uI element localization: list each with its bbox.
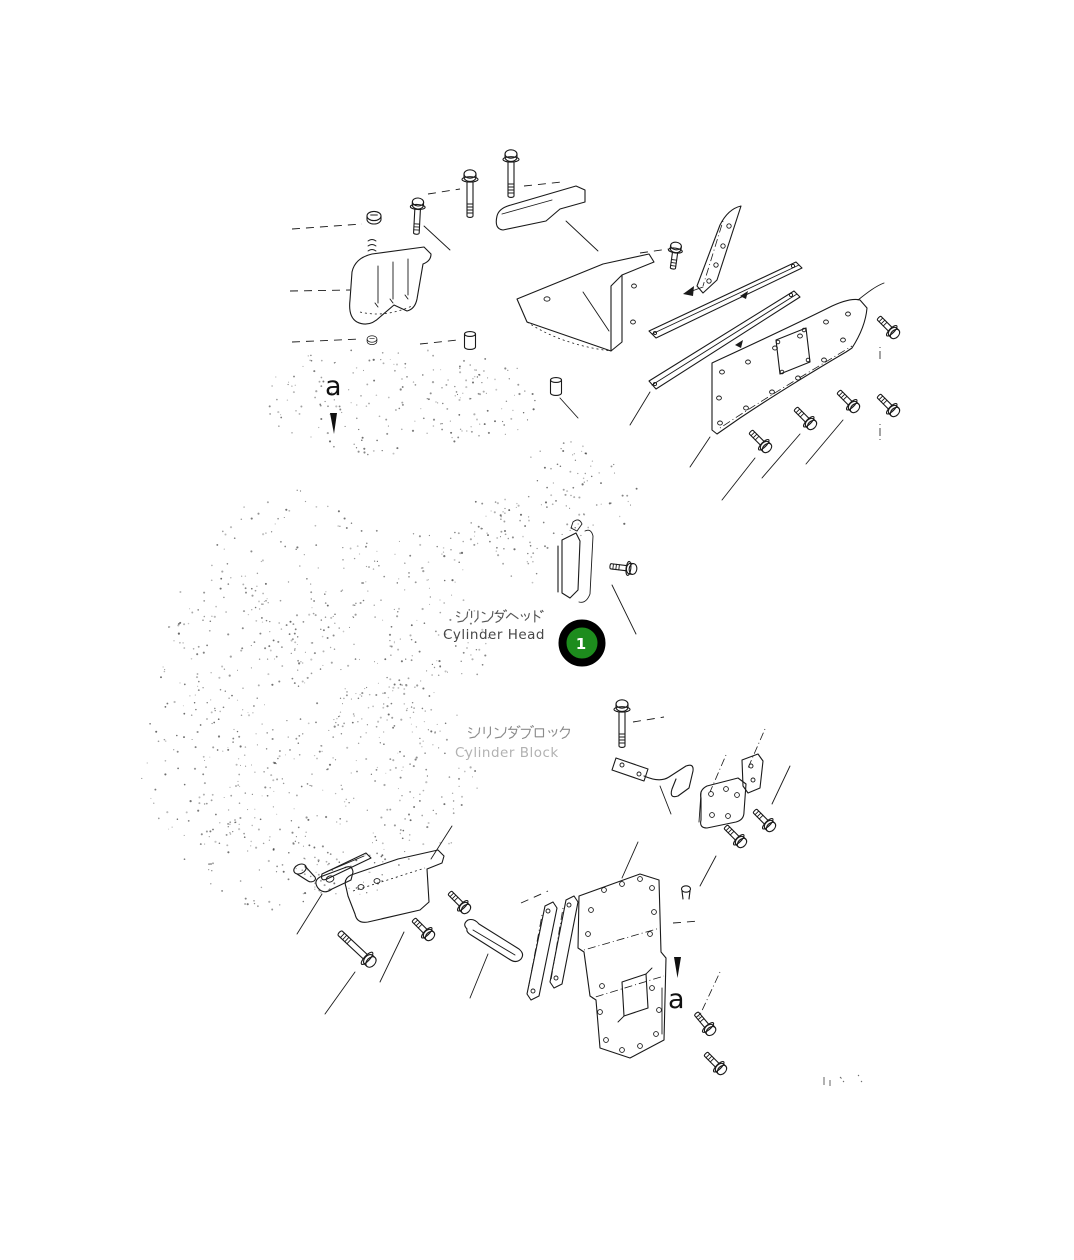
- bolt: [791, 404, 820, 433]
- clamp: [297, 867, 353, 934]
- bolt: [445, 888, 474, 917]
- bolt: [874, 391, 903, 420]
- corner-mark: [824, 1075, 862, 1086]
- cylinder-block-label-en: Cylinder Block: [455, 745, 559, 761]
- gusset-plate: [345, 826, 452, 922]
- cylinder-head-label-jp: [457, 610, 543, 622]
- bolt: [503, 150, 519, 198]
- cylinder-block-label: Cylinder Block: [455, 726, 570, 761]
- bolt: [750, 806, 779, 835]
- pin-rod: [465, 920, 523, 999]
- grommet: [292, 862, 315, 882]
- down-arrow-icon: [674, 957, 681, 978]
- mounting-plate: [578, 842, 666, 1058]
- bolt: [874, 313, 903, 342]
- bolt: [701, 1049, 730, 1078]
- view-marker-a-top: a: [325, 371, 342, 402]
- clamp-bracket: [350, 247, 431, 324]
- bolt: [462, 170, 478, 218]
- section-marker-top: a: [325, 371, 342, 434]
- cylinder-block-label-jp: [469, 726, 570, 739]
- bolt: [334, 927, 380, 971]
- bolt: [691, 1009, 719, 1039]
- exploded-parts-diagram: a Cylinder Head 1 Cylinder Block: [0, 0, 1074, 1260]
- gusset-bracket: [683, 206, 741, 296]
- bolt: [721, 822, 750, 851]
- bushing: [465, 332, 476, 350]
- bolt: [666, 241, 684, 270]
- bottom-hardware-group: [292, 826, 699, 1058]
- strip: [550, 896, 578, 988]
- bolt: [834, 387, 863, 416]
- spring: [368, 240, 376, 252]
- nut: [367, 211, 381, 224]
- down-arrow-icon: [330, 413, 337, 434]
- l-bracket: [517, 254, 654, 351]
- top-hardware-group: [290, 150, 903, 500]
- parts-diagram-page: a Cylinder Head 1 Cylinder Block: [0, 0, 1074, 1260]
- side-cover-plate: [690, 283, 884, 467]
- view-marker-a-bottom: a: [668, 984, 685, 1015]
- callout-number: 1: [576, 635, 586, 653]
- bolt: [409, 915, 438, 944]
- small-bracket: [558, 520, 593, 602]
- section-marker-bottom: a: [668, 957, 685, 1015]
- cylinder-head-label: Cylinder Head: [443, 610, 545, 643]
- mid-lower-hardware: [612, 700, 790, 886]
- nut: [367, 336, 377, 345]
- rail-strip: [630, 291, 800, 425]
- bracket: [496, 186, 598, 251]
- callout-balloon-1[interactable]: 1: [563, 624, 602, 663]
- bolt: [409, 198, 426, 235]
- cylinder-head-label-en: Cylinder Head: [443, 627, 545, 643]
- bolt: [746, 427, 775, 456]
- bolt: [614, 700, 630, 748]
- bolt: [609, 559, 638, 576]
- small-bolt: [682, 886, 691, 899]
- bushing: [551, 378, 562, 396]
